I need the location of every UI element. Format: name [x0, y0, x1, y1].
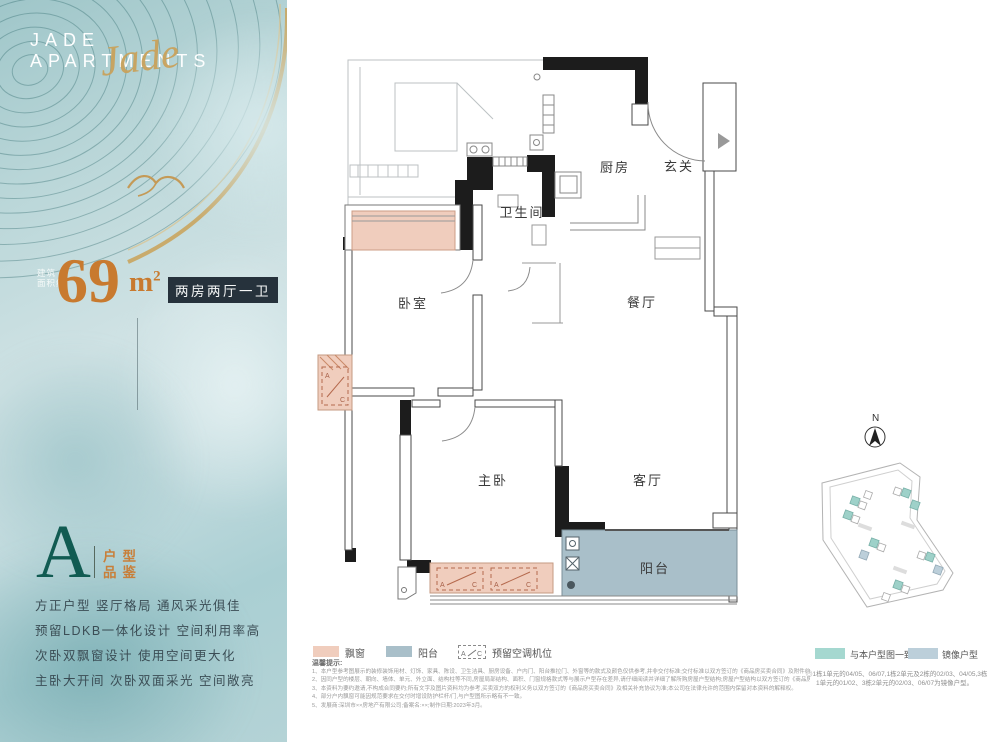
- room-label-bedroom: 卧室: [398, 296, 428, 311]
- room-label-dining: 餐厅: [627, 295, 657, 310]
- notes-title: 温馨提示:: [312, 659, 810, 668]
- type-label-2: 品鉴: [103, 561, 142, 581]
- area-unit-m: m: [129, 266, 153, 298]
- left-brand-panel: JADE APARTMENTS Jade 建筑 面积约 69 m2 两房两厅一卫…: [0, 0, 287, 742]
- drain-symbol: [567, 581, 575, 589]
- area-unit: m2: [129, 266, 161, 299]
- layout-badge: 两房两厅一卫: [168, 277, 278, 303]
- note-line: 3、本资料为要约邀请,不构成合同要约;所有文字及图片资料均为参考,买卖双方的权利…: [312, 685, 810, 693]
- legend-bay-swatch: [313, 646, 339, 657]
- type-letter: A: [36, 514, 91, 590]
- master-bay-window: A C A C: [430, 563, 553, 593]
- disclaimer-notes: 温馨提示: 1、本户型参考图展示的装修装饰用材、灯饰、家具、陈设、卫生洁具、厨房…: [312, 659, 810, 710]
- sitemap-note-line2: 1单元的01/02、3栋2单元的02/03、06/07为镜像户型。: [806, 679, 973, 688]
- legend-balcony-swatch: [386, 646, 412, 657]
- ac-letter-a: A: [325, 373, 330, 380]
- feature-line: 主卧大开间 次卧双面采光 空间敞亮: [35, 670, 255, 689]
- site-map: N: [798, 405, 998, 625]
- feature-line: 预留LDKB一体化设计 空间利用率高: [35, 620, 261, 639]
- feature-line: 次卧双飘窗设计 使用空间更大化: [35, 645, 236, 664]
- north-label: N: [872, 413, 879, 424]
- legend-bay-label: 飘窗: [345, 645, 365, 660]
- legend-same-label: 与本户型图一致: [850, 648, 913, 661]
- site-boundary-inner: [830, 470, 945, 599]
- legend-same-swatch: [815, 648, 845, 659]
- legend-ac-glyph: A C: [458, 645, 486, 659]
- legend-ac-label: 预留空调机位: [492, 645, 552, 660]
- swallow-icon: [126, 168, 186, 198]
- site-buildings: [843, 485, 944, 601]
- north-arrow-icon: [869, 428, 881, 446]
- type-divider: [94, 546, 95, 578]
- bay-window-bedroom: [345, 205, 460, 250]
- ac-letter-c: C: [340, 397, 345, 404]
- foyer-cabinet: [655, 237, 700, 259]
- legend-balcony-label: 阳台: [418, 645, 438, 660]
- ac-letter-a: A: [494, 582, 499, 589]
- bay-window-left: A C: [318, 355, 352, 410]
- room-label-balcony: 阳台: [640, 561, 670, 576]
- room-label-living: 客厅: [633, 473, 663, 488]
- legend-mirror-swatch: [908, 648, 938, 659]
- sitemap-note-line1: ◎1栋1单元的04/05、06/07,1栋2单元及2栋的02/03、04/05,…: [806, 670, 987, 679]
- ac-letter-c: C: [472, 582, 477, 589]
- corner-door-glyph: [398, 567, 416, 599]
- svg-text:A: A: [461, 651, 466, 658]
- area-value: 69: [56, 244, 120, 318]
- ac-glyph-icon: A C: [459, 647, 485, 659]
- room-label-foyer: 玄关: [664, 159, 694, 174]
- brand-script-word: Jade: [97, 29, 182, 86]
- svg-text:C: C: [477, 651, 482, 658]
- note-line: 5、发展商:深圳市××房地产有限公司;备案名:××;制作日期:2023年3月。: [312, 702, 810, 710]
- common-lobby: [348, 60, 543, 205]
- floorplan-poster: JADE APARTMENTS Jade 建筑 面积约 69 m2 两房两厅一卫…: [0, 0, 1000, 742]
- note-line: 2、因同户型的楼层、朝向、墙体、单元、外立面、结构柱等不同,房屋局部结构、面积、…: [312, 676, 810, 684]
- kitchen-fixtures: [467, 74, 645, 230]
- note-line: 4、部分户内飘窗可能因规范要求在交付时增设防护栏杆/门,与户型图所示略有不一致。: [312, 693, 810, 701]
- feature-line: 方正户型 竖厅格局 通风采光俱佳: [35, 595, 241, 614]
- ac-letter-c: C: [526, 582, 531, 589]
- decor-vertical-line: [137, 318, 138, 410]
- legend-mirror-label: 镜像户型: [942, 648, 978, 661]
- room-label-kitchen: 厨房: [600, 160, 630, 175]
- area-unit-sup: 2: [153, 268, 161, 284]
- black-walls: [343, 57, 648, 573]
- note-line: 1、本户型参考图展示的装修装饰用材、灯饰、家具、陈设、卫生洁具、厨房设备、户内门…: [312, 668, 810, 676]
- ac-letter-a: A: [440, 582, 445, 589]
- floor-plan: A C A C A C: [300, 45, 760, 645]
- room-label-bathroom: 卫生间: [499, 205, 544, 220]
- room-label-master: 主卧: [478, 473, 508, 488]
